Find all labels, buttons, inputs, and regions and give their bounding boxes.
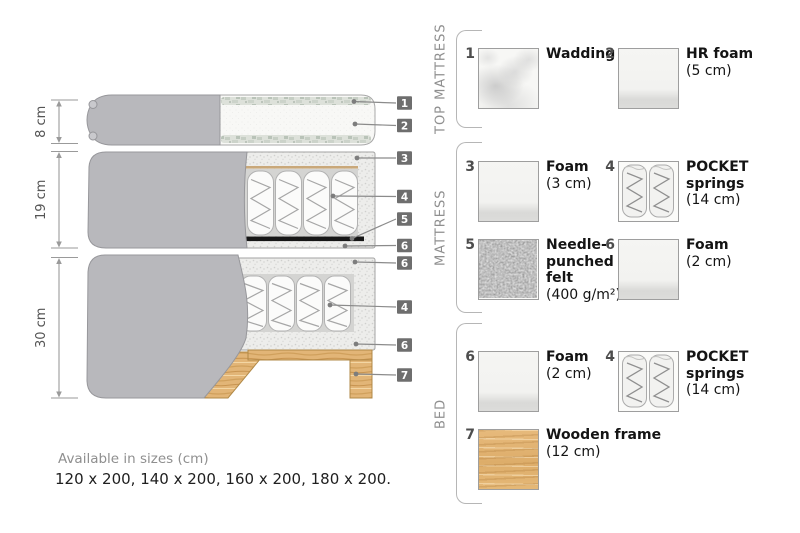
legend-item-number: 6 (460, 350, 475, 365)
mattress-cover (88, 152, 247, 248)
measurement-30cm-label: 30 cm (34, 308, 49, 349)
legend-item-number: 3 (460, 160, 475, 175)
material-size: (2 cm) (686, 254, 732, 271)
callout-tag-2: 2 (397, 119, 412, 133)
legend-item-wooden-frame: 7 Wooden frame (12 cm) (460, 429, 661, 490)
legend-item-number: 4 (600, 160, 615, 175)
callout-number: 6 (401, 240, 408, 252)
wooden-rail (248, 350, 372, 360)
section-label-mattress: MATTRESS (429, 142, 453, 313)
material-name: springs (686, 366, 748, 383)
legend-item-number: 6 (600, 238, 615, 253)
legend-item-wadding: 1 Wadding (460, 48, 615, 109)
measurement-30cm: 30 cm (34, 258, 78, 399)
callout-tag-1: 1 (397, 96, 412, 110)
legend-item-caption: Foam (2 cm) (546, 349, 592, 382)
mattress-foam-line (230, 166, 358, 169)
callout-tag-6: 6 (397, 239, 412, 253)
pocket-springs-swatch (618, 351, 679, 412)
callout-number: 4 (401, 191, 408, 203)
material-name: Foam (686, 237, 732, 254)
legend-item-caption: HR foam (5 cm) (686, 46, 753, 79)
foam-swatch (618, 239, 679, 300)
measurement-19cm: 19 cm (34, 152, 78, 249)
legend-item-foam-2cm: 6 Foam (2 cm) (600, 239, 732, 300)
material-size: (5 cm) (686, 63, 753, 80)
material-size: (2 cm) (546, 366, 592, 383)
available-sizes-values: 120 x 200, 140 x 200, 160 x 200, 180 x 2… (55, 470, 391, 488)
section-label-bed: BED (429, 323, 453, 504)
legend-item-caption: Wooden frame (12 cm) (546, 427, 661, 460)
measurement-8cm-label: 8 cm (34, 106, 49, 138)
material-size: (14 cm) (686, 192, 748, 209)
wadding-bottom-band (221, 135, 371, 143)
legend-item-caption: Foam (2 cm) (686, 237, 732, 270)
legend-item-pocket-springs: 4 POCKET springs (14 cm) (600, 161, 748, 222)
material-name: Wooden frame (546, 427, 661, 444)
material-name: Foam (546, 159, 592, 176)
legend-item-foam-3cm: 3 Foam (3 cm) (460, 161, 592, 222)
legend-item-number: 2 (600, 47, 615, 62)
measurement-8cm: 8 cm (34, 100, 78, 144)
legend-item-hr-foam: 2 HR foam (5 cm) (600, 48, 753, 109)
legend-item-number: 1 (460, 47, 475, 62)
material-name: HR foam (686, 46, 753, 63)
callout-tag-6b: 6 (397, 256, 412, 270)
material-name: POCKET (686, 349, 748, 366)
top-mattress-cover (87, 95, 220, 145)
legend-item-foam-2cm-bed: 6 Foam (2 cm) (460, 351, 592, 412)
legend-item-felt: 5 Needle- punched felt (400 g/ (460, 239, 621, 303)
legend-item-caption: Foam (3 cm) (546, 159, 592, 192)
callout-tag-4: 4 (397, 190, 412, 204)
legend-item-caption: POCKET springs (14 cm) (686, 159, 748, 209)
callout-tag-6c: 6 (397, 338, 412, 352)
pocket-springs-swatch (618, 161, 679, 222)
material-size: (14 cm) (686, 382, 748, 399)
felt-swatch (478, 239, 539, 300)
callout-tag-3: 3 (397, 151, 412, 165)
measurement-19cm-label: 19 cm (34, 180, 49, 221)
callout-number: 3 (401, 153, 408, 165)
callout-number: 4 (401, 302, 408, 314)
material-size: (3 cm) (546, 176, 592, 193)
cover-button (89, 132, 97, 140)
bed-base-piece (87, 255, 375, 398)
callout-number: 7 (401, 370, 408, 382)
callout-number: 5 (401, 214, 408, 226)
wadding-swatch (478, 48, 539, 109)
wooden-leg (350, 360, 372, 398)
foam-swatch (478, 161, 539, 222)
material-name: springs (686, 176, 748, 193)
material-name: POCKET (686, 159, 748, 176)
callout-number: 6 (401, 258, 408, 270)
callout-number: 1 (401, 98, 408, 110)
callout-tags: 1 2 3 4 5 6 6 4 (397, 96, 412, 382)
legend-item-pocket-springs-bed: 4 POCKET springs (14 cm) (600, 351, 748, 412)
material-name: Foam (546, 349, 592, 366)
section-label-top-mattress: TOP MATTRESS (429, 30, 453, 128)
felt-layer (227, 237, 364, 242)
callout-tag-7: 7 (397, 368, 412, 382)
wadding-top-band (221, 97, 371, 105)
callout-tag-4b: 4 (397, 300, 412, 314)
foam-swatch (618, 48, 679, 109)
material-size: (12 cm) (546, 444, 661, 461)
legend-item-caption: POCKET springs (14 cm) (686, 349, 748, 399)
top-mattress-piece (87, 95, 375, 145)
legend-item-number: 4 (600, 350, 615, 365)
legend-item-number: 5 (460, 238, 475, 253)
callout-number: 6 (401, 340, 408, 352)
legend-item-number: 7 (460, 428, 475, 443)
available-sizes-heading: Available in sizes (cm) (58, 451, 209, 467)
mattress-piece (88, 152, 375, 248)
callout-tag-5: 5 (397, 212, 412, 226)
callout-number: 2 (401, 120, 408, 132)
foam-swatch (478, 351, 539, 412)
cover-button (89, 101, 97, 109)
wood-swatch (478, 429, 539, 490)
